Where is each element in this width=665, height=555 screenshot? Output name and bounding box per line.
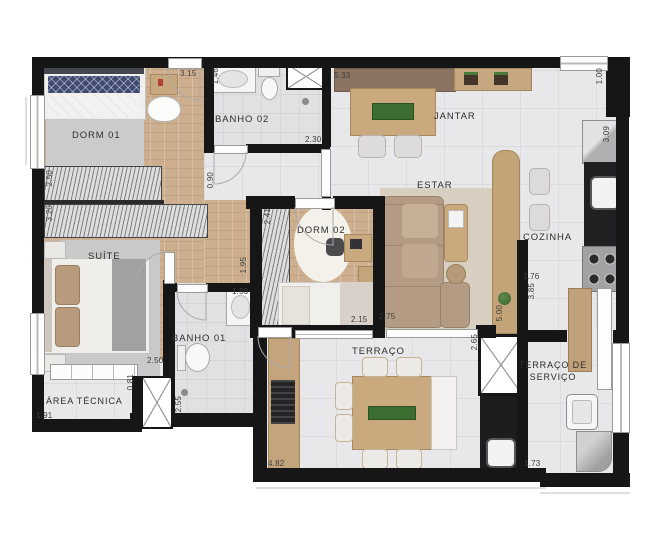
- sliding-door-cozinha-servico: [597, 288, 612, 390]
- stool-2: [529, 204, 550, 231]
- wall: [204, 144, 214, 153]
- sofa-cushion-2: [402, 244, 438, 278]
- floor-plan: DORM 01 BANHO 02 JANTAR ESTAR COZINHA DO…: [0, 0, 665, 555]
- room-label-jantar: JANTAR: [434, 111, 476, 122]
- shower-head-banho02: [302, 98, 309, 105]
- sliding-door-estar-terraco: [386, 329, 478, 338]
- room-label-banho02: BANHO 02: [215, 114, 269, 125]
- wardrobe-dorm01: [44, 166, 162, 202]
- dim-2-50-wardrobe: 2.50: [45, 170, 54, 186]
- pillow-dorm02: [282, 286, 310, 325]
- sofa-chaise: [440, 282, 470, 328]
- toilet-banho02: [261, 77, 278, 100]
- door-banho01: [177, 284, 208, 293]
- wall: [322, 62, 331, 147]
- room-label-cozinha: COZINHA: [523, 232, 572, 243]
- dim-2-50-suite: 2.50: [147, 356, 163, 365]
- wall: [163, 283, 177, 292]
- door-terraco: [258, 327, 292, 338]
- dim-3-09: 3.09: [602, 126, 611, 142]
- pillow-suite-1: [55, 265, 80, 305]
- window-suite: [30, 313, 45, 375]
- door-banho02: [214, 145, 248, 154]
- laundry-tank-basin: [572, 400, 592, 424]
- room-label-terraco: TERRAÇO: [352, 346, 405, 357]
- terrace-chair-2: [396, 357, 422, 377]
- wall: [616, 62, 629, 330]
- sink-banho01: [231, 295, 250, 319]
- wall: [256, 468, 546, 482]
- rug-dorm01: [46, 118, 144, 166]
- shaft-area-tecnica: [141, 376, 173, 429]
- terrace-chair-6: [335, 414, 353, 442]
- room-label-terraco-servico: TERRAÇO DE SERVIÇO: [516, 360, 590, 383]
- wall: [246, 144, 330, 153]
- side-table-round: [446, 264, 466, 284]
- dim-0-81: 0.81: [126, 374, 135, 390]
- door-dorm02: [295, 198, 335, 209]
- wall: [44, 200, 164, 204]
- dim-4-82: 4.82: [268, 459, 284, 468]
- sink-banho02: [218, 70, 248, 88]
- wall: [326, 57, 562, 68]
- dim-2-65: 2.65: [470, 334, 479, 350]
- terrace-chair-3: [362, 449, 388, 469]
- toilet-banho01: [185, 343, 210, 372]
- headboard-suite: [44, 258, 52, 352]
- desk-chair-dorm02: [326, 238, 344, 256]
- dim-2-41: 2.41: [263, 208, 272, 224]
- dim-1-46: 1.46: [211, 68, 220, 84]
- dim-1-91: 1.91: [36, 411, 52, 420]
- gourmet-sink: [486, 438, 516, 468]
- pillows-dorm01: [48, 76, 140, 93]
- dim-3-20: 3.20: [45, 205, 54, 221]
- dim-1-73: 1.73: [524, 459, 540, 468]
- fridge: [582, 120, 618, 164]
- wall: [250, 196, 262, 337]
- room-label-banho01: BANHO 01: [172, 333, 226, 344]
- dim-1-50: 1.50: [232, 287, 248, 296]
- dim-2-55: 2.55: [174, 396, 183, 412]
- room-label-dorm02: DORM 02: [297, 225, 346, 236]
- wall: [32, 419, 142, 432]
- dim-2-15: 2.15: [351, 315, 367, 324]
- door-suite: [164, 252, 175, 284]
- wall: [527, 330, 567, 342]
- wardrobe-suite: [44, 204, 208, 238]
- sofa-cushion-1: [402, 204, 438, 238]
- window-dorm01: [30, 95, 45, 169]
- washer: [576, 431, 612, 472]
- duvet-dorm01: [48, 94, 140, 117]
- dim-0-90: 0.90: [206, 172, 215, 188]
- nightstand-suite-1: [44, 241, 66, 259]
- nightstand-dorm01: [150, 74, 178, 95]
- wall: [540, 473, 630, 487]
- terrace-chair-1: [362, 357, 388, 377]
- terrace-chair-4: [396, 449, 422, 469]
- sill-line: [540, 492, 630, 494]
- coffee-table-tray: [448, 210, 464, 228]
- dim-2-75: 2.75: [379, 312, 395, 321]
- laptop-dorm02: [350, 239, 362, 249]
- dim-5-33: 5.33: [334, 71, 350, 80]
- dim-3-85: 3.85: [527, 283, 536, 299]
- dim-2-30: 2.30: [305, 135, 321, 144]
- dining-chair-1: [358, 135, 386, 158]
- sill-line: [256, 487, 546, 489]
- door-dorm01: [168, 58, 202, 69]
- dim-5-00: 5.00: [495, 305, 504, 321]
- room-label-estar: ESTAR: [417, 180, 452, 191]
- stool-1: [529, 168, 550, 195]
- room-label-area-tecnica: ÁREA TÉCNICA: [46, 396, 123, 406]
- room-label-suite: SUÍTE: [88, 251, 120, 262]
- pillow-suite-2: [55, 307, 80, 347]
- window-servico: [612, 343, 630, 433]
- dim-1-00: 1.00: [595, 68, 604, 84]
- terrace-chair-5: [335, 382, 353, 410]
- sill-line: [25, 97, 27, 165]
- utility-shelf: [50, 364, 138, 380]
- dim-1-76: 1.76: [523, 272, 539, 281]
- armchair-dorm01: [147, 96, 181, 122]
- window-dorm02-terraco: [295, 330, 373, 339]
- bed-runner-suite: [112, 259, 146, 351]
- terrace-bench: [431, 376, 457, 450]
- pocket-door-hall: [321, 149, 331, 197]
- grill: [271, 380, 295, 424]
- dining-chair-2: [394, 135, 422, 158]
- dim-3-15: 3.15: [180, 69, 196, 78]
- toilet-tank-banho02: [258, 67, 280, 77]
- plant-box-1: [464, 72, 478, 85]
- room-label-dorm01: DORM 01: [72, 130, 121, 141]
- wall: [32, 167, 44, 315]
- terrace-runner-plant: [368, 406, 416, 420]
- wall: [253, 325, 267, 482]
- wall: [206, 283, 256, 292]
- wall: [476, 325, 496, 338]
- table-runner-plant: [372, 103, 414, 120]
- plant-box-2: [494, 72, 508, 85]
- decor-item-red: [158, 79, 163, 86]
- dim-1-95: 1.95: [239, 257, 248, 273]
- shower-head-banho01: [181, 389, 188, 396]
- plant-counter: [498, 292, 511, 305]
